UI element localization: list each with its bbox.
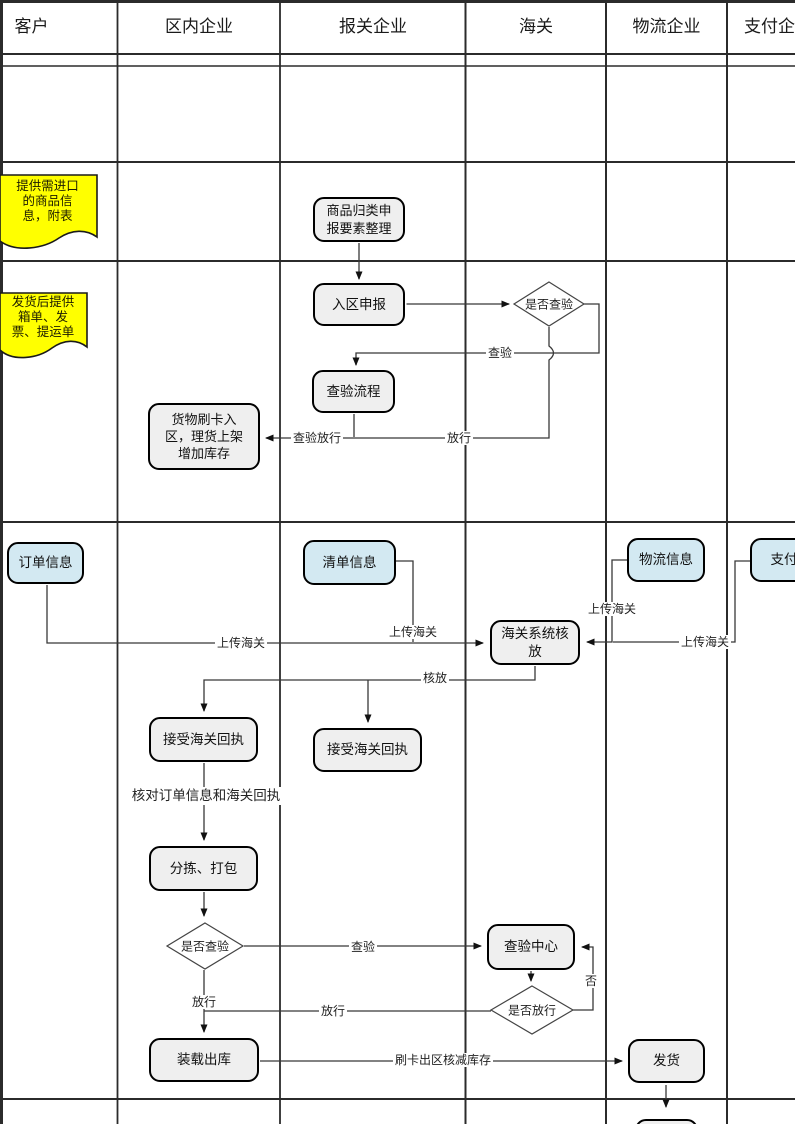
- edge-label-verify-release: 核放: [421, 671, 449, 685]
- flow-connectors: [47, 243, 750, 1107]
- lane-header-zone-enterprise: 区内企业: [118, 16, 280, 38]
- annotation-check-order-receipt: 核对订单信息和海关回执: [128, 787, 285, 805]
- process-classification-declaration: 商品归类申 报要素整理: [313, 197, 405, 242]
- lane-header-payment: 支付企业: [727, 16, 795, 38]
- data-box-logistics-info: 物流信息: [627, 538, 705, 582]
- process-sorting-packing: 分拣、打包: [149, 846, 258, 891]
- lane-header-customs: 海关: [466, 16, 606, 38]
- process-entry-declaration: 入区申报: [313, 283, 405, 326]
- edge-label-upload-list: 上传海关: [387, 625, 439, 639]
- process-inspection-center: 查验中心: [487, 924, 575, 970]
- diamond-inspect-top-label: 是否查验: [525, 296, 573, 313]
- edge-label-release-horizontal: 放行: [319, 1004, 347, 1018]
- edge-label-inspect-release: 查验放行: [291, 431, 343, 445]
- lane-header-customer: 客户: [0, 16, 63, 38]
- process-ship: 发货: [628, 1039, 705, 1083]
- edge-label-upload-logistics: 上传海关: [586, 602, 638, 616]
- note-provide-product-info-text: 提供需进口 的商品信 息，附表: [0, 179, 95, 224]
- diamond-inspect-bottom-label: 是否查验: [181, 938, 229, 955]
- process-customs-system-release: 海关系统核 放: [490, 620, 580, 665]
- edge-label-inspect-bottom: 查验: [349, 940, 377, 954]
- flowchart-canvas: 客户 区内企业 报关企业 海关 物流企业 支付企业 提供需进口 的商品信 息，附…: [0, 0, 795, 1124]
- edge-label-release-vertical: 放行: [190, 995, 218, 1009]
- process-receive-receipt-declare: 接受海关回执: [313, 728, 422, 772]
- process-load-out: 装载出库: [149, 1038, 259, 1082]
- process-cutoff-bottom: [635, 1119, 698, 1124]
- process-receive-receipt-zone: 接受海关回执: [149, 717, 258, 762]
- process-inspection-flow: 查验流程: [312, 370, 395, 413]
- edge-label-swipe-out: 刷卡出区核减库存: [393, 1053, 493, 1067]
- connector-verify-release-left: [204, 666, 535, 711]
- edge-label-release-top: 放行: [445, 431, 473, 445]
- data-box-list-info: 清单信息: [303, 540, 396, 585]
- data-box-order-info: 订单信息: [7, 542, 84, 584]
- lane-header-declaration-enterprise: 报关企业: [280, 16, 466, 38]
- lane-header-logistics: 物流企业: [606, 16, 727, 38]
- edge-label-upload-order: 上传海关: [215, 636, 267, 650]
- data-box-payment-info: 支付信息: [750, 538, 795, 582]
- note-shipping-docs-text: 发货后提供 箱单、发 票、提运单: [0, 295, 86, 340]
- connector-release-to-card-in: [266, 327, 554, 438]
- edge-label-upload-payment: 上传海关: [679, 635, 731, 649]
- diamond-release-label: 是否放行: [508, 1002, 556, 1019]
- edge-label-no: 否: [583, 974, 599, 988]
- process-card-in-shelving: 货物刷卡入 区，理货上架 增加库存: [148, 403, 260, 470]
- edge-label-inspect-top: 查验: [486, 346, 514, 360]
